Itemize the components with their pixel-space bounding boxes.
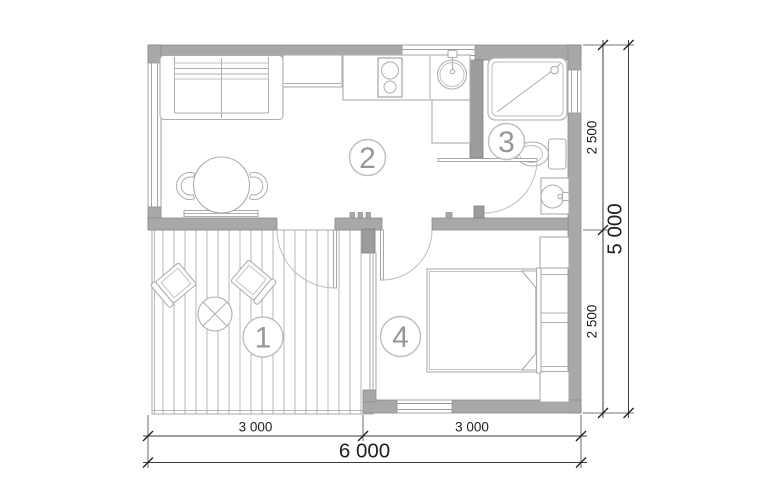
room-number-bedroom: 4 [392,321,409,354]
window-bedroom-terrace [370,253,376,390]
bedroom-door-swing [382,230,432,280]
wall-right-upper [568,45,581,70]
bedroom [381,230,570,402]
wall-left-upper [148,45,161,63]
room-number-bathroom: 3 [498,126,515,159]
dining-table [194,157,250,213]
window-bathroom [568,70,581,113]
shower-drain-icon [551,66,559,74]
window-left [148,63,161,207]
wall-switch-nub [358,213,363,219]
dim-right-bottom: 2 500 [585,305,600,339]
dining-chair-right [249,173,267,200]
dim-bottom-total: 6 000 [339,440,390,463]
terrace-table [198,297,232,331]
stove [378,58,402,97]
terrace-door-leaf [334,230,337,288]
dining-set [177,157,268,217]
room-number-living: 2 [359,142,376,175]
floor-plan-drawing: 1 2 3 4 2 500 2 500 5 000 3 000 3 000 6 … [0,0,775,502]
bathroom-door-leaf [438,159,537,162]
washbasin-faucet-icon [563,193,570,201]
dim-bottom-right: 3 000 [455,420,489,435]
floor-plan-svg: 1 2 3 4 2 500 2 500 5 000 3 000 3 000 6 … [0,0,775,502]
wall-switch-nub [366,213,371,219]
faucet-icon [448,51,457,58]
wall-terrace-bedroom-corner [363,390,376,402]
bathroom-door-swing [484,160,537,213]
wall-middle-t-stem [362,229,375,253]
wall-middle-right [432,218,568,230]
dim-bottom-left: 3 000 [239,420,273,435]
bedroom-door-leaf [381,230,384,280]
bed-headboard [537,268,542,373]
nightstand-bottom [540,372,569,403]
nightstand-top [540,237,569,268]
wall-switch-nub [350,213,355,219]
wall-right-lower [568,113,581,413]
bathroom-door [438,159,537,214]
bed-mattress [427,269,538,372]
window-bedroom [397,400,452,413]
wall-switch-nub [446,213,452,219]
dim-right-total: 5 000 [604,203,627,254]
kitchen [283,51,470,144]
sofa [160,56,283,120]
shower-tray [488,58,567,120]
room-number-terrace: 1 [255,322,272,355]
bed [427,268,569,373]
bedroom-door [381,230,433,280]
toilet-tank [549,139,567,169]
wall-bathroom-door-stub [474,206,484,218]
kitchen-counter-return [432,100,470,143]
dim-right-top: 2 500 [585,121,600,155]
wall-bathroom-partition [470,60,483,158]
washbasin [541,178,569,214]
wall-middle-left [148,218,277,230]
kitchen-cabinet [283,55,342,87]
dining-chair-left [177,172,195,199]
wall-middle-t-block [335,218,382,230]
